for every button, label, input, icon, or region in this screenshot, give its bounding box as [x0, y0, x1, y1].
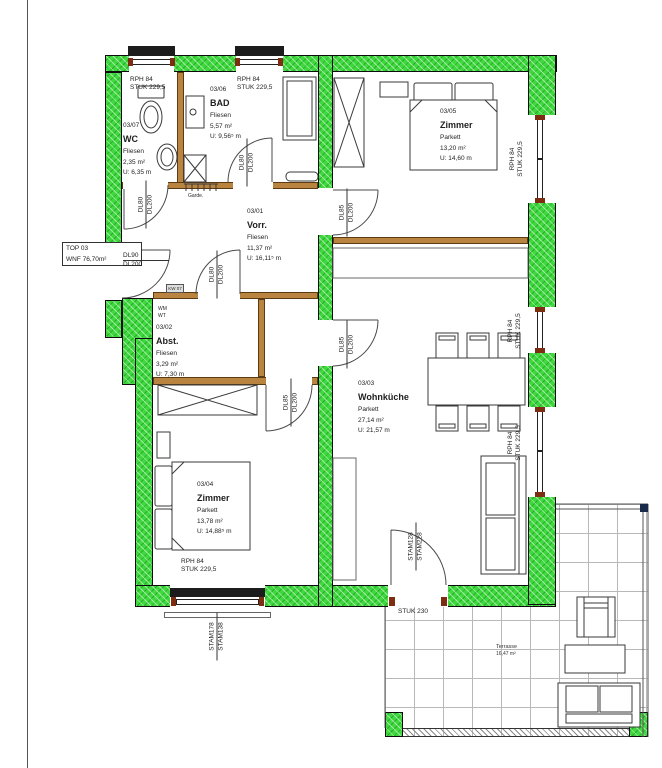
terrace-pier-right — [629, 712, 648, 737]
dining-chair — [436, 406, 458, 431]
installation-shaft — [184, 155, 206, 182]
zimmer05-wardrobe — [334, 78, 364, 167]
zimmer05-nightstand — [380, 82, 408, 97]
window-top-1-end-right — [170, 58, 175, 66]
zimmer05-pillow-right — [455, 83, 493, 102]
wc-door-label: DL80 DL200 — [138, 181, 155, 229]
window-top-1-frame — [130, 59, 173, 65]
garderobe-label: Garde. — [188, 193, 203, 199]
window-right-a-mullion — [537, 158, 543, 160]
bad-shower-inner — [287, 81, 312, 136]
kitchen-counter-top — [333, 248, 528, 278]
window-bottom-end-right — [259, 597, 264, 606]
window-bottom-shutter — [170, 588, 265, 597]
window-right-a-end-bottom — [535, 198, 545, 203]
room-label-bad: 03/06 BAD Fliesen 5,57 m² U: 9,56⁵ m — [210, 86, 241, 143]
hall-bench — [286, 172, 318, 181]
window-right-b-frame — [537, 309, 543, 351]
dining-table — [428, 358, 525, 405]
wall-left-lower — [135, 338, 153, 607]
door-wohnkueche-gap — [318, 320, 333, 366]
window-right-c-mullion — [537, 450, 543, 452]
room-label-abstellraum: 03/02 Abst. Fliesen 3,29 m² U: 7,30 m — [156, 324, 184, 381]
bad-washbasin-drain — [190, 109, 196, 115]
room-label-vorraum: 03/01 Vorr. Fliesen 11,37 m² U: 16,11⁵ m — [247, 208, 281, 265]
wall-abst-right — [258, 299, 265, 377]
window-right-c-frame — [537, 409, 543, 495]
installation-shaft-cross — [184, 155, 206, 182]
dining-chair — [436, 333, 458, 358]
zimmer04-nightstand — [157, 432, 170, 458]
bad-shower — [283, 77, 316, 140]
door-zimmer05-gap — [318, 188, 333, 235]
floor-plan: TOP 03 WNF 76,70m² 03/07 WC Fliesen 2,35… — [0, 0, 662, 768]
terrace-pier-left — [385, 712, 403, 737]
window-top-2-end-right — [278, 58, 283, 66]
dining-chair-back — [470, 336, 486, 340]
dining-chair-back — [470, 424, 486, 428]
zimmer04-wardrobe — [158, 385, 257, 415]
page-border-line — [27, 0, 28, 768]
wall-left-upper — [105, 72, 122, 248]
terrace-door-label: STAM128 STAM228 — [408, 523, 425, 571]
window-top-2-frame — [237, 59, 282, 65]
zimmer05-door-label: DL85 DL200 — [339, 189, 356, 237]
terrace-door-jamb-left — [389, 597, 395, 606]
room-label-wohnkueche: 03/03 Wohnküche Parkett 27,14 m² U: 21,5… — [358, 380, 409, 437]
window-top-1-label: RPH 84 STUK 229,5 — [130, 76, 165, 92]
dining-chair — [467, 406, 489, 431]
zimmer04-wardrobe-cross — [158, 385, 257, 415]
dining-chair-back — [439, 336, 455, 340]
window-top-2-end-left — [235, 58, 240, 66]
dining-chair — [467, 333, 489, 358]
terrace-edge-strip — [385, 728, 648, 737]
zimmer05-wardrobe-cross — [334, 78, 364, 167]
bad-door-label: DL80 DL200 — [239, 139, 256, 187]
kw-box: KW 07 — [166, 284, 184, 293]
window-right-a-label: RPH 84 STUK 229,5 — [509, 137, 525, 181]
wohnkueche-door-label: DL85 DL200 — [339, 321, 356, 369]
room-label-zimmer05: 03/05 Zimmer Parkett 13,20 m² U: 14,60 m — [440, 108, 473, 165]
room-label-wc: 03/07 WC Fliesen 2,35 m² U: 6,35 m — [123, 122, 151, 179]
window-right-c-end-top — [535, 407, 545, 412]
living-sofa-cushion — [486, 518, 515, 570]
wall-left-mid — [105, 300, 122, 338]
window-top-1-end-left — [128, 58, 133, 66]
wm-label: WM — [158, 306, 167, 312]
zimmer04-door-label: DL85 DL200 — [283, 379, 300, 427]
zimmer05-pillow-left — [414, 83, 452, 102]
wc-sink — [157, 144, 177, 170]
zimmer04-pillow-bottom — [155, 509, 172, 549]
window-right-a-end-top — [535, 115, 545, 120]
window-bottom-frame — [176, 599, 259, 605]
room-label-zimmer04: 03/04 Zimmer Parkett 13,78 m² U: 14,88⁵ … — [197, 481, 232, 538]
terrace-door-jamb-right — [441, 597, 447, 606]
wc-sink-inner — [161, 148, 173, 166]
window-right-c-label: RPH 84 STUK 229,5 — [507, 421, 523, 465]
wt-label: WT — [158, 313, 166, 319]
window-right-c-end-bottom — [535, 492, 545, 497]
bad-washbasin — [186, 96, 204, 128]
kitchen-counter-left — [333, 458, 356, 580]
wall-wc-bad — [177, 72, 184, 185]
terrace-label: Terrasse 16,47 m² — [496, 644, 517, 657]
window-top-2-shutter — [235, 46, 284, 56]
wall-zimmer05-wohnkueche — [333, 237, 528, 244]
bottom-window-stam-label: STAM178 STAM138 — [209, 613, 226, 661]
zimmer04-pillow-top — [155, 466, 172, 506]
window-bottom-end-left — [171, 597, 176, 606]
entrance-door-label: DL90 DL200 — [123, 252, 169, 269]
living-sofa-cushion — [486, 463, 515, 515]
abst-door-label: DL80 DL200 — [209, 251, 226, 299]
window-right-b-end-top — [535, 307, 545, 312]
terrace-door-gap — [388, 585, 448, 607]
dining-chair-back — [439, 424, 455, 428]
living-sofa — [481, 456, 526, 574]
zimmer04-bed-folds — [172, 462, 184, 550]
window-top-2-label: RPH 84 STUK 229,5 — [237, 76, 272, 92]
stuk230-label: STUK 230 — [398, 608, 428, 616]
window-right-b-end-bottom — [535, 348, 545, 353]
window-right-b-label: RPH 84 STUK 229,5 — [507, 309, 523, 353]
window-top-1-shutter — [128, 46, 175, 56]
window-bottom-label: RPH 84 STUK 229,5 — [181, 558, 216, 574]
